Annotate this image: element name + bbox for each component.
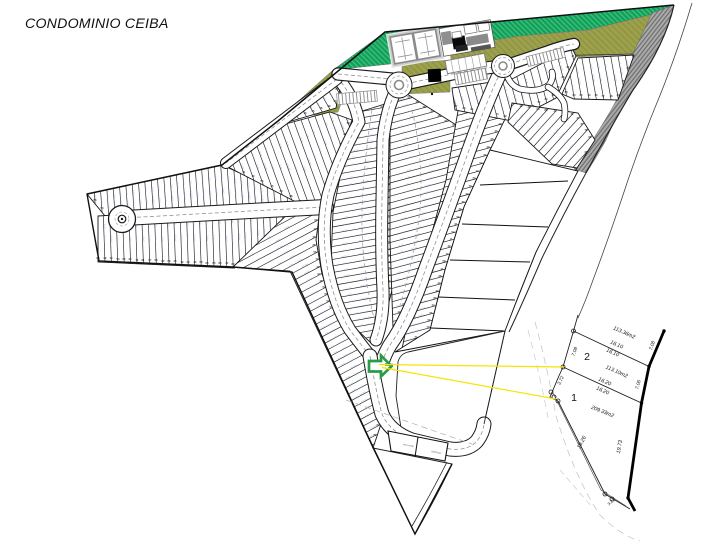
svg-text:1: 1 <box>571 392 577 404</box>
svg-text:7.00: 7.00 <box>163 185 165 189</box>
svg-text:110.2m2: 110.2m2 <box>238 233 240 240</box>
svg-text:115m2: 115m2 <box>254 195 256 201</box>
svg-text:7.00: 7.00 <box>176 183 178 187</box>
svg-text:7.00: 7.00 <box>189 180 191 184</box>
svg-text:115m2: 115m2 <box>129 236 131 242</box>
svg-text:7x16m: 7x16m <box>257 230 259 236</box>
svg-text:16.20: 16.20 <box>151 187 153 192</box>
svg-text:110.2m2: 110.2m2 <box>231 234 233 241</box>
svg-text:113.5m2: 113.5m2 <box>167 235 169 242</box>
svg-text:16.20: 16.20 <box>157 186 159 191</box>
svg-text:16.10: 16.10 <box>138 189 140 194</box>
svg-text:16.10: 16.10 <box>227 176 229 181</box>
svg-text:7x16m: 7x16m <box>250 231 252 237</box>
svg-text:115m2: 115m2 <box>164 196 166 202</box>
svg-text:115m2: 115m2 <box>218 235 220 241</box>
svg-text:110.2m2: 110.2m2 <box>174 234 176 241</box>
svg-text:113.5m2: 113.5m2 <box>110 235 112 242</box>
svg-text:113.5m2: 113.5m2 <box>122 235 124 242</box>
svg-text:16.10: 16.10 <box>240 181 242 186</box>
svg-text:7x16m: 7x16m <box>206 235 208 241</box>
svg-text:7x16m: 7x16m <box>145 198 147 204</box>
svg-text:7.00: 7.00 <box>119 193 121 197</box>
svg-text:16.10: 16.10 <box>106 195 108 200</box>
svg-text:16.20: 16.20 <box>253 185 255 190</box>
svg-text:16.20: 16.20 <box>260 188 262 193</box>
svg-text:113.5m2: 113.5m2 <box>244 232 246 239</box>
svg-text:7x16m: 7x16m <box>132 200 134 206</box>
svg-text:16.10: 16.10 <box>144 188 146 193</box>
svg-text:115m2: 115m2 <box>263 229 265 235</box>
svg-text:110.2m2: 110.2m2 <box>103 235 105 242</box>
svg-text:CONDOMINIO CEIBA: CONDOMINIO CEIBA <box>25 16 169 32</box>
svg-text:7x16m: 7x16m <box>154 236 156 242</box>
svg-text:110.2m2: 110.2m2 <box>193 234 195 241</box>
svg-text:16.10: 16.10 <box>132 190 134 195</box>
svg-text:16.10: 16.10 <box>201 178 203 183</box>
svg-text:16.10: 16.10 <box>103 224 105 229</box>
svg-text:7.00: 7.00 <box>208 177 210 181</box>
svg-text:7.00: 7.00 <box>273 192 275 196</box>
svg-text:7x16m: 7x16m <box>212 235 214 241</box>
svg-text:16.10: 16.10 <box>182 181 184 186</box>
svg-text:16.20: 16.20 <box>220 175 222 180</box>
svg-text:7x16m: 7x16m <box>100 199 102 205</box>
svg-text:7x16m: 7x16m <box>161 236 163 242</box>
svg-text:113.5m2: 113.5m2 <box>148 235 150 242</box>
svg-text:7.00: 7.00 <box>113 194 115 198</box>
svg-text:115m2: 115m2 <box>171 195 173 201</box>
svg-text:7x16m: 7x16m <box>139 199 141 205</box>
svg-text:115m2: 115m2 <box>142 236 144 242</box>
svg-text:16.10: 16.10 <box>125 191 127 196</box>
svg-text:115m2: 115m2 <box>225 235 227 241</box>
svg-text:2: 2 <box>584 351 590 363</box>
svg-text:7.00: 7.00 <box>170 184 172 188</box>
svg-text:16.20: 16.20 <box>195 179 197 184</box>
svg-text:110.2m2: 110.2m2 <box>186 234 188 241</box>
svg-text:16.10: 16.10 <box>214 176 216 181</box>
svg-text:7x16m: 7x16m <box>199 235 201 241</box>
svg-text:16.10: 16.10 <box>234 179 236 184</box>
svg-text:115m2: 115m2 <box>222 188 224 194</box>
svg-text:110.2m2: 110.2m2 <box>116 235 118 242</box>
svg-text:110.2m2: 110.2m2 <box>180 234 182 241</box>
svg-text:16.10: 16.10 <box>247 183 249 188</box>
svg-text:16.10: 16.10 <box>266 190 268 195</box>
svg-text:115m2: 115m2 <box>135 236 137 242</box>
svg-text:7x16m: 7x16m <box>209 190 211 196</box>
